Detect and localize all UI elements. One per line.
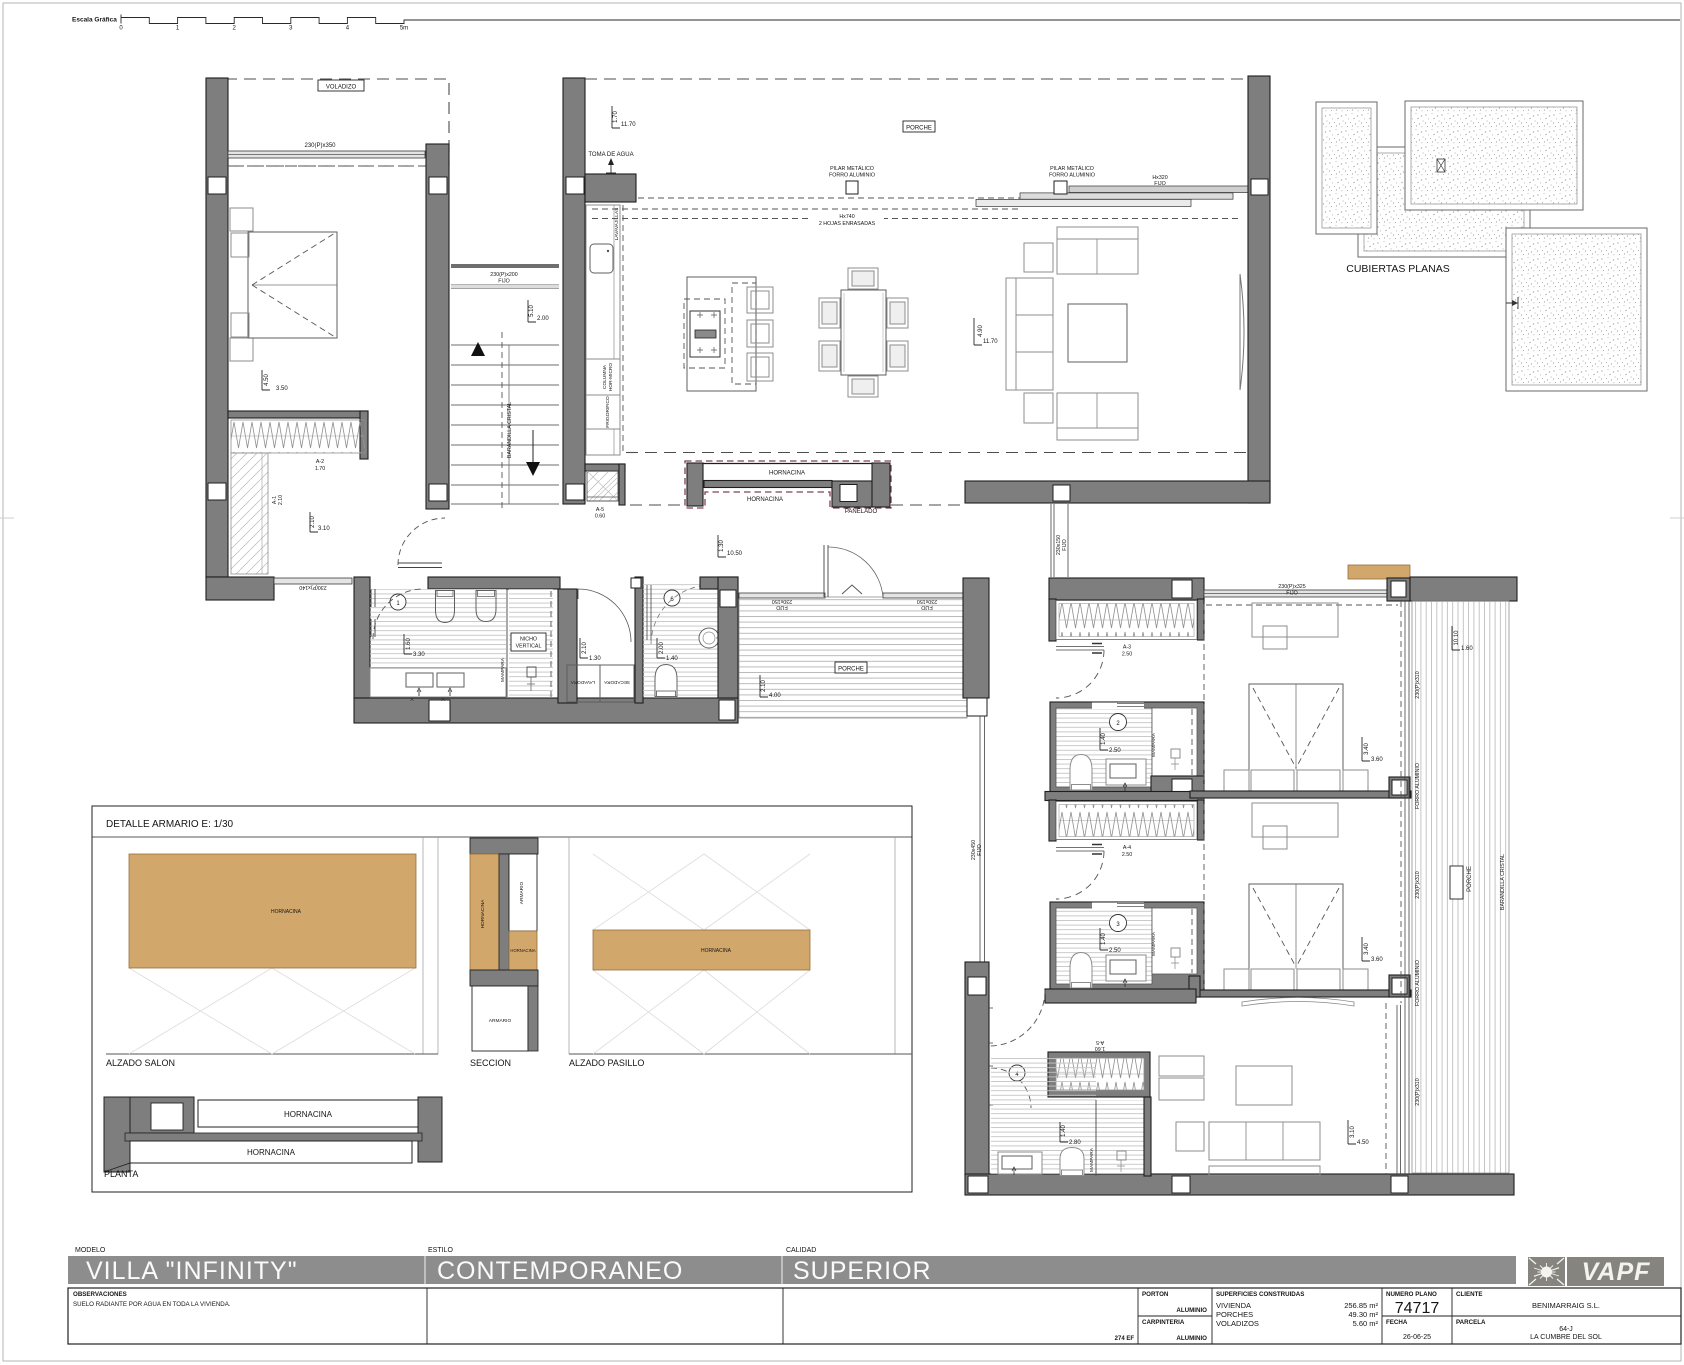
svg-text:PORCHES: PORCHES <box>1216 1310 1253 1319</box>
svg-text:VILLA "INFINITY": VILLA "INFINITY" <box>86 1257 298 1285</box>
svg-text:FIJO: FIJO <box>1062 539 1068 550</box>
svg-text:0.60: 0.60 <box>595 514 605 520</box>
svg-text:Escala Gráfica: Escala Gráfica <box>72 17 117 24</box>
svg-text:2.10: 2.10 <box>761 680 767 692</box>
svg-text:274 EF: 274 EF <box>1115 1336 1135 1342</box>
svg-text:PORCHE: PORCHE <box>906 126 932 132</box>
svg-text:1.40: 1.40 <box>1101 733 1107 745</box>
svg-text:2.10: 2.10 <box>582 642 588 654</box>
svg-text:1.30: 1.30 <box>719 540 725 552</box>
svg-text:FECHA: FECHA <box>1386 1319 1408 1326</box>
svg-text:FORRO ALUMINIO: FORRO ALUMINIO <box>1415 763 1421 809</box>
svg-text:ARMARIO: ARMARIO <box>519 882 525 905</box>
svg-text:SECADORA: SECADORA <box>603 680 630 685</box>
svg-text:DETALLE ARMARIO E: 1/30: DETALLE ARMARIO E: 1/30 <box>106 819 234 830</box>
svg-text:FRIGORIFICO: FRIGORIFICO <box>605 396 611 428</box>
svg-text:230(P)x310: 230(P)x310 <box>1415 1078 1421 1105</box>
svg-text:PORTON: PORTON <box>1142 1291 1169 1298</box>
svg-text:1.30: 1.30 <box>589 656 601 662</box>
svg-text:COLUMNA: COLUMNA <box>602 364 608 389</box>
svg-text:ARMARIO: ARMARIO <box>489 1018 512 1024</box>
svg-text:4.50: 4.50 <box>264 374 270 386</box>
svg-text:HORNACINA: HORNACINA <box>769 471 805 477</box>
svg-text:FIJO: FIJO <box>1286 591 1297 597</box>
svg-text:CONTEMPORANEO: CONTEMPORANEO <box>437 1257 683 1285</box>
svg-text:CALIDAD: CALIDAD <box>786 1247 816 1254</box>
svg-text:LAVADORA: LAVADORA <box>570 680 595 685</box>
svg-text:HORNACINA: HORNACINA <box>247 1148 296 1157</box>
svg-text:230(P)x310: 230(P)x310 <box>1415 671 1421 698</box>
svg-text:230(P)x325: 230(P)x325 <box>1278 584 1305 590</box>
svg-text:5.10: 5.10 <box>529 305 535 317</box>
svg-text:A: A <box>441 697 444 702</box>
svg-text:VOLADIZO: VOLADIZO <box>326 85 357 91</box>
svg-text:A-4: A-4 <box>1123 845 1131 851</box>
svg-text:LAVAVAJILLAS: LAVAVAJILLAS <box>614 208 620 241</box>
svg-text:MAMPARA: MAMPARA <box>500 657 506 682</box>
svg-text:FORRO ALUMINIO: FORRO ALUMINIO <box>1049 173 1095 179</box>
svg-text:3.10: 3.10 <box>318 526 330 532</box>
svg-text:ESTILO: ESTILO <box>428 1247 453 1254</box>
svg-text:PORCHE: PORCHE <box>838 667 864 673</box>
svg-text:MAMPARA: MAMPARA <box>1151 732 1157 757</box>
svg-text:PILAR METÁLICO: PILAR METÁLICO <box>830 165 874 172</box>
svg-text:HOR-MICRO: HOR-MICRO <box>608 363 614 392</box>
svg-text:230(P)x310: 230(P)x310 <box>1415 871 1421 898</box>
svg-text:256.85 m²: 256.85 m² <box>1344 1301 1378 1310</box>
svg-text:5m: 5m <box>400 26 408 32</box>
svg-text:3.40: 3.40 <box>1364 943 1370 955</box>
svg-text:SUPERFICIES CONSTRUIDAS: SUPERFICIES CONSTRUIDAS <box>1216 1291 1304 1298</box>
svg-text:CARPINTERIA: CARPINTERIA <box>1142 1319 1185 1326</box>
svg-text:4.90: 4.90 <box>978 325 984 337</box>
svg-text:FIJO: FIJO <box>977 844 983 855</box>
svg-text:A-3: A-3 <box>1123 645 1131 651</box>
svg-text:A: A <box>410 697 413 702</box>
svg-text:PILAR METÁLICO: PILAR METÁLICO <box>1050 165 1094 172</box>
svg-text:VIVIENDA: VIVIENDA <box>1216 1301 1251 1310</box>
svg-text:MAMPARA: MAMPARA <box>1151 931 1157 956</box>
svg-text:PARCELA: PARCELA <box>1456 1319 1486 1326</box>
svg-text:2.50: 2.50 <box>1122 852 1132 858</box>
svg-text:A-2: A-2 <box>316 459 324 465</box>
svg-text:11.70: 11.70 <box>983 339 998 345</box>
svg-text:2.50: 2.50 <box>1122 652 1132 658</box>
svg-text:ALZADO PASILLO: ALZADO PASILLO <box>569 1058 644 1068</box>
svg-text:CUBIERTAS PLANAS: CUBIERTAS PLANAS <box>1346 263 1449 275</box>
svg-text:1.40: 1.40 <box>1101 933 1107 945</box>
svg-text:2.10: 2.10 <box>310 516 316 528</box>
svg-text:VOLADIZOS: VOLADIZOS <box>1216 1319 1259 1328</box>
svg-text:SUPERIOR: SUPERIOR <box>793 1257 932 1285</box>
svg-text:74717: 74717 <box>1395 1300 1440 1317</box>
svg-text:SUELO RADIANTE POR AGUA EN TOD: SUELO RADIANTE POR AGUA EN TODA LA VIVIE… <box>73 1301 231 1308</box>
svg-text:1.40: 1.40 <box>666 656 678 662</box>
svg-text:PORCHE: PORCHE <box>1467 866 1473 892</box>
svg-text:OBSERVACIONES: OBSERVACIONES <box>73 1291 127 1298</box>
svg-text:2.50: 2.50 <box>1109 748 1121 754</box>
svg-text:1.40: 1.40 <box>1061 1125 1067 1137</box>
svg-text:2.10: 2.10 <box>278 495 284 505</box>
svg-text:3.50: 3.50 <box>276 386 288 392</box>
svg-text:PANELADO: PANELADO <box>845 509 878 515</box>
svg-text:49.30 m²: 49.30 m² <box>1348 1310 1378 1319</box>
svg-text:2.00: 2.00 <box>659 642 665 654</box>
svg-text:4.50: 4.50 <box>1357 1140 1369 1146</box>
svg-text:MAMPARA: MAMPARA <box>1089 1147 1095 1172</box>
svg-text:3.10: 3.10 <box>1350 1126 1356 1138</box>
svg-text:FIJO: FIJO <box>921 604 932 610</box>
svg-text:1.60: 1.60 <box>1095 1045 1105 1051</box>
svg-text:HORNACINA: HORNACINA <box>271 909 302 915</box>
svg-text:4.00: 4.00 <box>769 693 781 699</box>
svg-text:3.60: 3.60 <box>1371 957 1383 963</box>
svg-text:FIJO: FIJO <box>1154 181 1165 187</box>
svg-text:NICHO: NICHO <box>520 637 537 643</box>
svg-text:A-5: A-5 <box>596 507 604 513</box>
svg-text:ALZADO SALON: ALZADO SALON <box>106 1058 175 1068</box>
svg-text:FIJO: FIJO <box>776 604 787 610</box>
svg-text:230x150: 230x150 <box>772 598 792 604</box>
svg-text:VAPF: VAPF <box>1582 1258 1651 1286</box>
svg-text:PLANTA: PLANTA <box>104 1169 138 1179</box>
svg-text:11.70: 11.70 <box>621 122 636 128</box>
svg-text:A-5: A-5 <box>1096 1039 1104 1045</box>
svg-text:26-06-25: 26-06-25 <box>1403 1334 1431 1341</box>
svg-text:3.40: 3.40 <box>1364 743 1370 755</box>
svg-text:230(P)x140: 230(P)x140 <box>299 584 326 590</box>
svg-text:HORNACINA: HORNACINA <box>701 948 732 954</box>
svg-text:BARANDILLA CRISTAL: BARANDILLA CRISTAL <box>507 402 513 458</box>
svg-text:230(P)x200: 230(P)x200 <box>490 272 517 278</box>
svg-text:10.10: 10.10 <box>1454 630 1460 646</box>
svg-text:LA CUMBRE DEL SOL: LA CUMBRE DEL SOL <box>1530 1334 1602 1341</box>
svg-text:Hx740: Hx740 <box>839 214 854 220</box>
svg-text:HORNACINA: HORNACINA <box>747 497 783 503</box>
svg-text:CLIENTE: CLIENTE <box>1456 1291 1482 1298</box>
svg-text:HORNACINA: HORNACINA <box>480 899 486 929</box>
svg-text:FORRO ALUMINIO: FORRO ALUMINIO <box>1415 960 1421 1006</box>
svg-text:BARANDILLA CRISTAL: BARANDILLA CRISTAL <box>1500 854 1506 910</box>
svg-text:1.60: 1.60 <box>406 638 412 650</box>
svg-text:BENIMARRAIG S.L.: BENIMARRAIG S.L. <box>1532 1301 1600 1310</box>
svg-text:230(P)x350: 230(P)x350 <box>304 143 336 149</box>
svg-text:3.60: 3.60 <box>1371 757 1383 763</box>
svg-text:NUMERO PLANO: NUMERO PLANO <box>1386 1291 1437 1298</box>
svg-text:FORRO ALUMINIO: FORRO ALUMINIO <box>829 173 875 179</box>
svg-text:HORNACINA: HORNACINA <box>284 1110 333 1119</box>
svg-text:HORNACINA: HORNACINA <box>510 948 535 953</box>
svg-text:FIJO: FIJO <box>498 279 509 285</box>
svg-text:2 HOJAS ENRASADAS: 2 HOJAS ENRASADAS <box>819 221 876 227</box>
svg-text:230x150: 230x150 <box>917 598 937 604</box>
svg-text:1.70: 1.70 <box>315 466 325 472</box>
svg-text:MODELO: MODELO <box>75 1247 106 1254</box>
svg-text:64-J: 64-J <box>1559 1326 1573 1333</box>
svg-text:2.80: 2.80 <box>1069 1140 1081 1146</box>
svg-text:ALUMINIO: ALUMINIO <box>1176 1307 1207 1314</box>
svg-text:10.50: 10.50 <box>727 551 743 557</box>
svg-text:SECCION: SECCION <box>470 1058 511 1068</box>
svg-text:3.30: 3.30 <box>413 652 425 658</box>
svg-text:2.00: 2.00 <box>537 316 549 322</box>
svg-text:1.60: 1.60 <box>1461 646 1473 652</box>
svg-text:1.70: 1.70 <box>613 111 619 123</box>
svg-text:ALUMINIO: ALUMINIO <box>1176 1335 1207 1342</box>
svg-text:2.50: 2.50 <box>1109 948 1121 954</box>
svg-text:5.60 m²: 5.60 m² <box>1353 1319 1379 1328</box>
svg-text:VERTICAL: VERTICAL <box>516 644 542 650</box>
svg-text:TOMA DE AGUA: TOMA DE AGUA <box>588 152 633 158</box>
